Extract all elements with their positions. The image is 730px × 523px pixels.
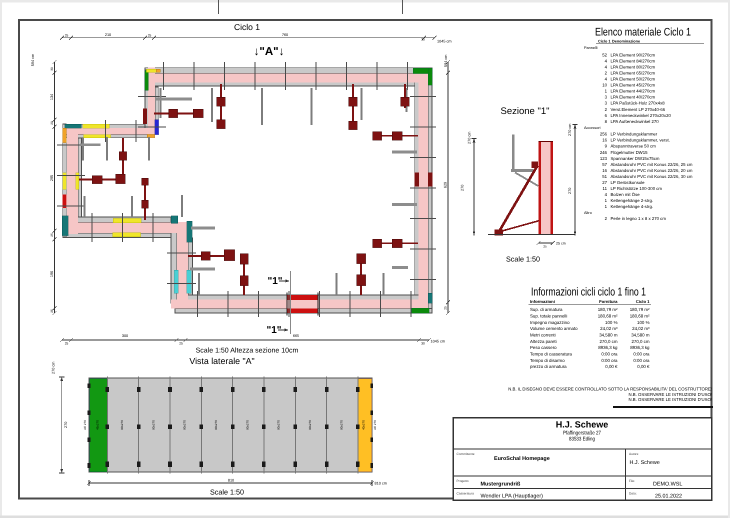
svg-text:90x270: 90x270	[120, 420, 124, 430]
svg-text:Autore: Autore	[629, 452, 639, 456]
svg-text:0,00 €: 0,00 €	[637, 364, 650, 369]
svg-text:LPA Paßstück-Holz 270x4x8: LPA Paßstück-Holz 270x4x8	[611, 101, 666, 106]
svg-text:LP Gerüstkonsole: LP Gerüstkonsole	[611, 180, 646, 185]
svg-text:↓"A"↓: ↓"A"↓	[254, 46, 285, 58]
svg-text:52: 52	[602, 52, 607, 57]
svg-text:File:: File:	[629, 479, 635, 483]
svg-text:Altro: Altro	[584, 211, 592, 215]
svg-text:LPA Element 44/270cm: LPA Element 44/270cm	[611, 89, 656, 94]
svg-text:Tempo di disarmo: Tempo di disarmo	[530, 358, 565, 363]
svg-text:34,580 m: 34,580 m	[599, 333, 618, 338]
svg-text:LP Richtstütze 100-300 cm: LP Richtstütze 100-300 cm	[611, 186, 663, 191]
svg-text:27: 27	[602, 180, 607, 185]
svg-text:760: 760	[282, 33, 288, 37]
svg-text:LPA Element 65/270cm: LPA Element 65/270cm	[611, 70, 656, 75]
svg-text:Ciclo 1: Ciclo 1	[636, 299, 650, 304]
svg-text:100 %: 100 %	[637, 320, 650, 325]
svg-text:270: 270	[568, 188, 572, 194]
svg-text:810: 810	[228, 478, 234, 482]
svg-text:270,0 cm: 270,0 cm	[631, 339, 649, 344]
svg-text:30: 30	[50, 67, 54, 71]
svg-text:"1": "1"	[267, 276, 282, 287]
svg-text:90x270: 90x270	[245, 420, 249, 430]
svg-text:AE 270: AE 270	[373, 420, 377, 430]
svg-text:270: 270	[461, 185, 465, 191]
svg-text:30: 30	[421, 37, 425, 41]
svg-text:665: 665	[293, 334, 299, 338]
svg-text:Pfaffingerstraße 27: Pfaffingerstraße 27	[563, 430, 601, 436]
svg-text:Progetto: Progetto	[457, 479, 469, 483]
svg-text:Informazioni cicli ciclo 1 fi: Informazioni cicli ciclo 1 fino 1	[531, 287, 646, 299]
svg-text:90x270: 90x270	[183, 420, 187, 430]
svg-text:Scale 1:50: Scale 1:50	[210, 488, 244, 497]
svg-text:Committente: Committente	[457, 452, 475, 456]
svg-text:LPA Element 90/270cm: LPA Element 90/270cm	[611, 52, 656, 57]
svg-text:300: 300	[122, 334, 128, 338]
svg-text:"1": "1"	[266, 325, 281, 336]
svg-text:Sezione "1": Sezione "1"	[501, 106, 550, 117]
svg-text:Scale 1:50: Scale 1:50	[506, 255, 540, 264]
svg-text:246: 246	[600, 150, 608, 155]
svg-text:34,580 m: 34,580 m	[631, 333, 650, 338]
svg-text:40x270: 40x270	[362, 420, 366, 430]
svg-text:LPA Element 45/270cm: LPA Element 45/270cm	[611, 83, 656, 88]
svg-text:210: 210	[105, 33, 111, 37]
svg-text:prezzo di armatura: prezzo di armatura	[530, 364, 567, 369]
svg-text:Sup. totale pannelli: Sup. totale pannelli	[530, 314, 567, 319]
svg-text:Abspanntraverse 50 cm: Abspanntraverse 50 cm	[611, 144, 657, 149]
svg-text:0:00 ora: 0:00 ora	[601, 358, 618, 363]
svg-text:25: 25	[65, 342, 69, 346]
svg-text:Bolzen mit Öse: Bolzen mit Öse	[611, 192, 641, 197]
svg-text:Ciclo 1: Ciclo 1	[598, 39, 610, 43]
svg-text:270: 270	[64, 422, 68, 428]
svg-text:LPA Inneneckwinkel 270x20x20: LPA Inneneckwinkel 270x20x20	[611, 113, 672, 118]
svg-text:270 cm: 270 cm	[468, 132, 472, 144]
svg-text:270 cm: 270 cm	[52, 362, 56, 374]
svg-text:51: 51	[602, 174, 607, 179]
svg-text:90x270: 90x270	[151, 420, 155, 430]
svg-text:629: 629	[444, 182, 448, 188]
svg-text:N.B. IL DISEGNO DEVE ESSERE CO: N.B. IL DISEGNO DEVE ESSERE CONTROLLATO …	[508, 387, 712, 392]
svg-text:11: 11	[603, 186, 608, 191]
svg-text:Volume cemento armato: Volume cemento armato	[530, 326, 578, 331]
svg-text:Wendler LPA (Hauptlager): Wendler LPA (Hauptlager)	[481, 494, 544, 500]
svg-text:AE 270: AE 270	[83, 420, 87, 430]
svg-text:25: 25	[50, 309, 54, 313]
svg-text:256: 256	[600, 132, 608, 137]
svg-text:H.J. Schewe: H.J. Schewe	[556, 420, 609, 430]
svg-text:Abstandsrohr PVC mit Konus 22/: Abstandsrohr PVC mit Konus 22/26, 20 cm	[611, 168, 693, 173]
svg-text:100 %: 100 %	[605, 320, 618, 325]
svg-text:Sup. di armatura: Sup. di armatura	[530, 307, 563, 312]
svg-text:45x270: 45x270	[96, 420, 100, 430]
svg-text:LP Verbindungsklammer, verst.: LP Verbindungsklammer, verst.	[611, 138, 670, 143]
svg-text:0,00 €: 0,00 €	[605, 364, 618, 369]
svg-text:Casseratura: Casseratura	[457, 491, 475, 495]
svg-text:83533 Edling: 83533 Edling	[569, 436, 595, 442]
svg-text:90x270: 90x270	[339, 420, 343, 430]
svg-text:25.01.2022: 25.01.2022	[655, 494, 682, 500]
svg-text:180,79 m²: 180,79 m²	[598, 307, 618, 312]
svg-text:Kettengehänge 4-strg.: Kettengehänge 4-strg.	[611, 204, 654, 209]
svg-text:Tempo di casseratura: Tempo di casseratura	[530, 352, 573, 357]
svg-text:Fornitura: Fornitura	[599, 299, 618, 304]
svg-text:Ciclo 1: Ciclo 1	[234, 22, 260, 32]
svg-text:DEMO.WSL: DEMO.WSL	[653, 481, 682, 487]
svg-text:1045 cm: 1045 cm	[437, 40, 452, 44]
svg-text:180,68 m²: 180,68 m²	[598, 314, 618, 319]
svg-text:594 cm: 594 cm	[444, 55, 448, 67]
svg-text:LPA Element 80/270cm: LPA Element 80/270cm	[611, 64, 656, 69]
svg-text:Peso cassero: Peso cassero	[530, 345, 557, 350]
svg-text:Flügelmutter DW15: Flügelmutter DW15	[611, 150, 649, 155]
svg-text:N.B. OSSERVARE LE ISTRUZIONI D: N.B. OSSERVARE LE ISTRUZIONI D'USO!	[628, 392, 712, 397]
svg-text:Mustergrundriß: Mustergrundriß	[481, 481, 522, 487]
svg-text:H.J. Schewe: H.J. Schewe	[630, 460, 660, 466]
svg-text:0:00 ora: 0:00 ora	[633, 352, 650, 357]
svg-text:10: 10	[602, 83, 607, 88]
svg-text:Denominazione: Denominazione	[612, 39, 640, 43]
svg-text:57: 57	[602, 162, 607, 167]
svg-text:24,02 m³: 24,02 m³	[632, 326, 650, 331]
svg-text:295: 295	[50, 175, 54, 181]
svg-text:LPA Element 40/270cm: LPA Element 40/270cm	[611, 95, 656, 100]
svg-text:Abstandsrohr PVC mit Konus 22/: Abstandsrohr PVC mit Konus 22/26, 25 cm	[611, 162, 693, 167]
svg-text:90x270: 90x270	[277, 420, 281, 430]
svg-text:25: 25	[65, 33, 69, 37]
svg-text:134: 134	[50, 94, 54, 100]
svg-text:8936,3 kg: 8936,3 kg	[630, 345, 650, 350]
svg-text:N.B. OSSERVARE LE ISTRUZIONI D: N.B. OSSERVARE LE ISTRUZIONI D'USO!	[628, 397, 712, 402]
svg-text:LPA Element 50/270cm: LPA Element 50/270cm	[611, 77, 656, 82]
svg-text:270 cm: 270 cm	[568, 124, 572, 136]
svg-text:8936,3 kg: 8936,3 kg	[598, 345, 618, 350]
svg-text:Metri correnti: Metri correnti	[530, 333, 556, 338]
svg-text:594 cm: 594 cm	[31, 54, 35, 66]
svg-text:Accessori: Accessori	[584, 126, 601, 130]
svg-text:Scale 1:50 Altezza sezione 1: Scale 1:50 Altezza sezione 10cm	[196, 347, 299, 355]
svg-text:Pannelli: Pannelli	[584, 46, 598, 50]
svg-text:30: 30	[421, 341, 425, 345]
svg-text:LPA Außeneckwinkel 270: LPA Außeneckwinkel 270	[611, 119, 660, 124]
svg-text:0:00 ora: 0:00 ora	[633, 358, 650, 363]
svg-text:16: 16	[602, 168, 607, 173]
svg-text:180,68 m²: 180,68 m²	[630, 314, 650, 319]
svg-text:Impegno magazzino: Impegno magazzino	[530, 320, 570, 325]
svg-text:Data:: Data:	[629, 491, 637, 495]
svg-text:LP Verbindungsklammer: LP Verbindungsklammer	[611, 132, 658, 137]
svg-text:25: 25	[543, 245, 547, 249]
svg-text:196: 196	[50, 271, 54, 277]
svg-text:270,0 cm: 270,0 cm	[599, 339, 617, 344]
svg-text:25: 25	[444, 306, 448, 310]
svg-text:Abstandsrohr PVC mit Konus 22/: Abstandsrohr PVC mit Konus 22/26, 30 cm	[611, 174, 693, 179]
svg-text:0:00 ora: 0:00 ora	[601, 352, 618, 357]
svg-text:Vista laterale "A": Vista laterale "A"	[189, 356, 254, 366]
svg-text:90x270: 90x270	[214, 420, 218, 430]
svg-text:25 cm: 25 cm	[556, 242, 566, 246]
svg-text:25: 25	[148, 33, 152, 37]
svg-text:EuroSchal Homepage: EuroSchal Homepage	[494, 456, 550, 462]
svg-text:180,79 m²: 180,79 m²	[630, 307, 650, 312]
svg-text:Elenco materiale Ciclo 1: Elenco materiale Ciclo 1	[595, 27, 691, 39]
svg-text:123: 123	[600, 156, 608, 161]
svg-text:Perle in legno 1 x 8 x 270 cm: Perle in legno 1 x 8 x 270 cm	[611, 216, 667, 221]
svg-text:Altezza pareti: Altezza pareti	[530, 339, 557, 344]
svg-text:20: 20	[50, 121, 54, 125]
svg-text:Spannanker DW15x75cm: Spannanker DW15x75cm	[611, 156, 660, 161]
svg-text:90x270: 90x270	[308, 420, 312, 430]
svg-text:Informazioni: Informazioni	[530, 299, 555, 304]
svg-text:1045 cm: 1045 cm	[431, 339, 446, 343]
svg-text:25: 25	[50, 233, 54, 237]
svg-text:810 cm: 810 cm	[375, 482, 387, 486]
svg-text:16: 16	[602, 138, 607, 143]
svg-text:LPA Element 84/270cm: LPA Element 84/270cm	[611, 58, 656, 63]
svg-text:Kettengehänge 2-strg.: Kettengehänge 2-strg.	[611, 198, 654, 203]
svg-text:Verst.Element LP 270x40-66: Verst.Element LP 270x40-66	[611, 107, 666, 112]
svg-text:25: 25	[179, 342, 183, 346]
svg-text:24,02 m³: 24,02 m³	[600, 326, 618, 331]
